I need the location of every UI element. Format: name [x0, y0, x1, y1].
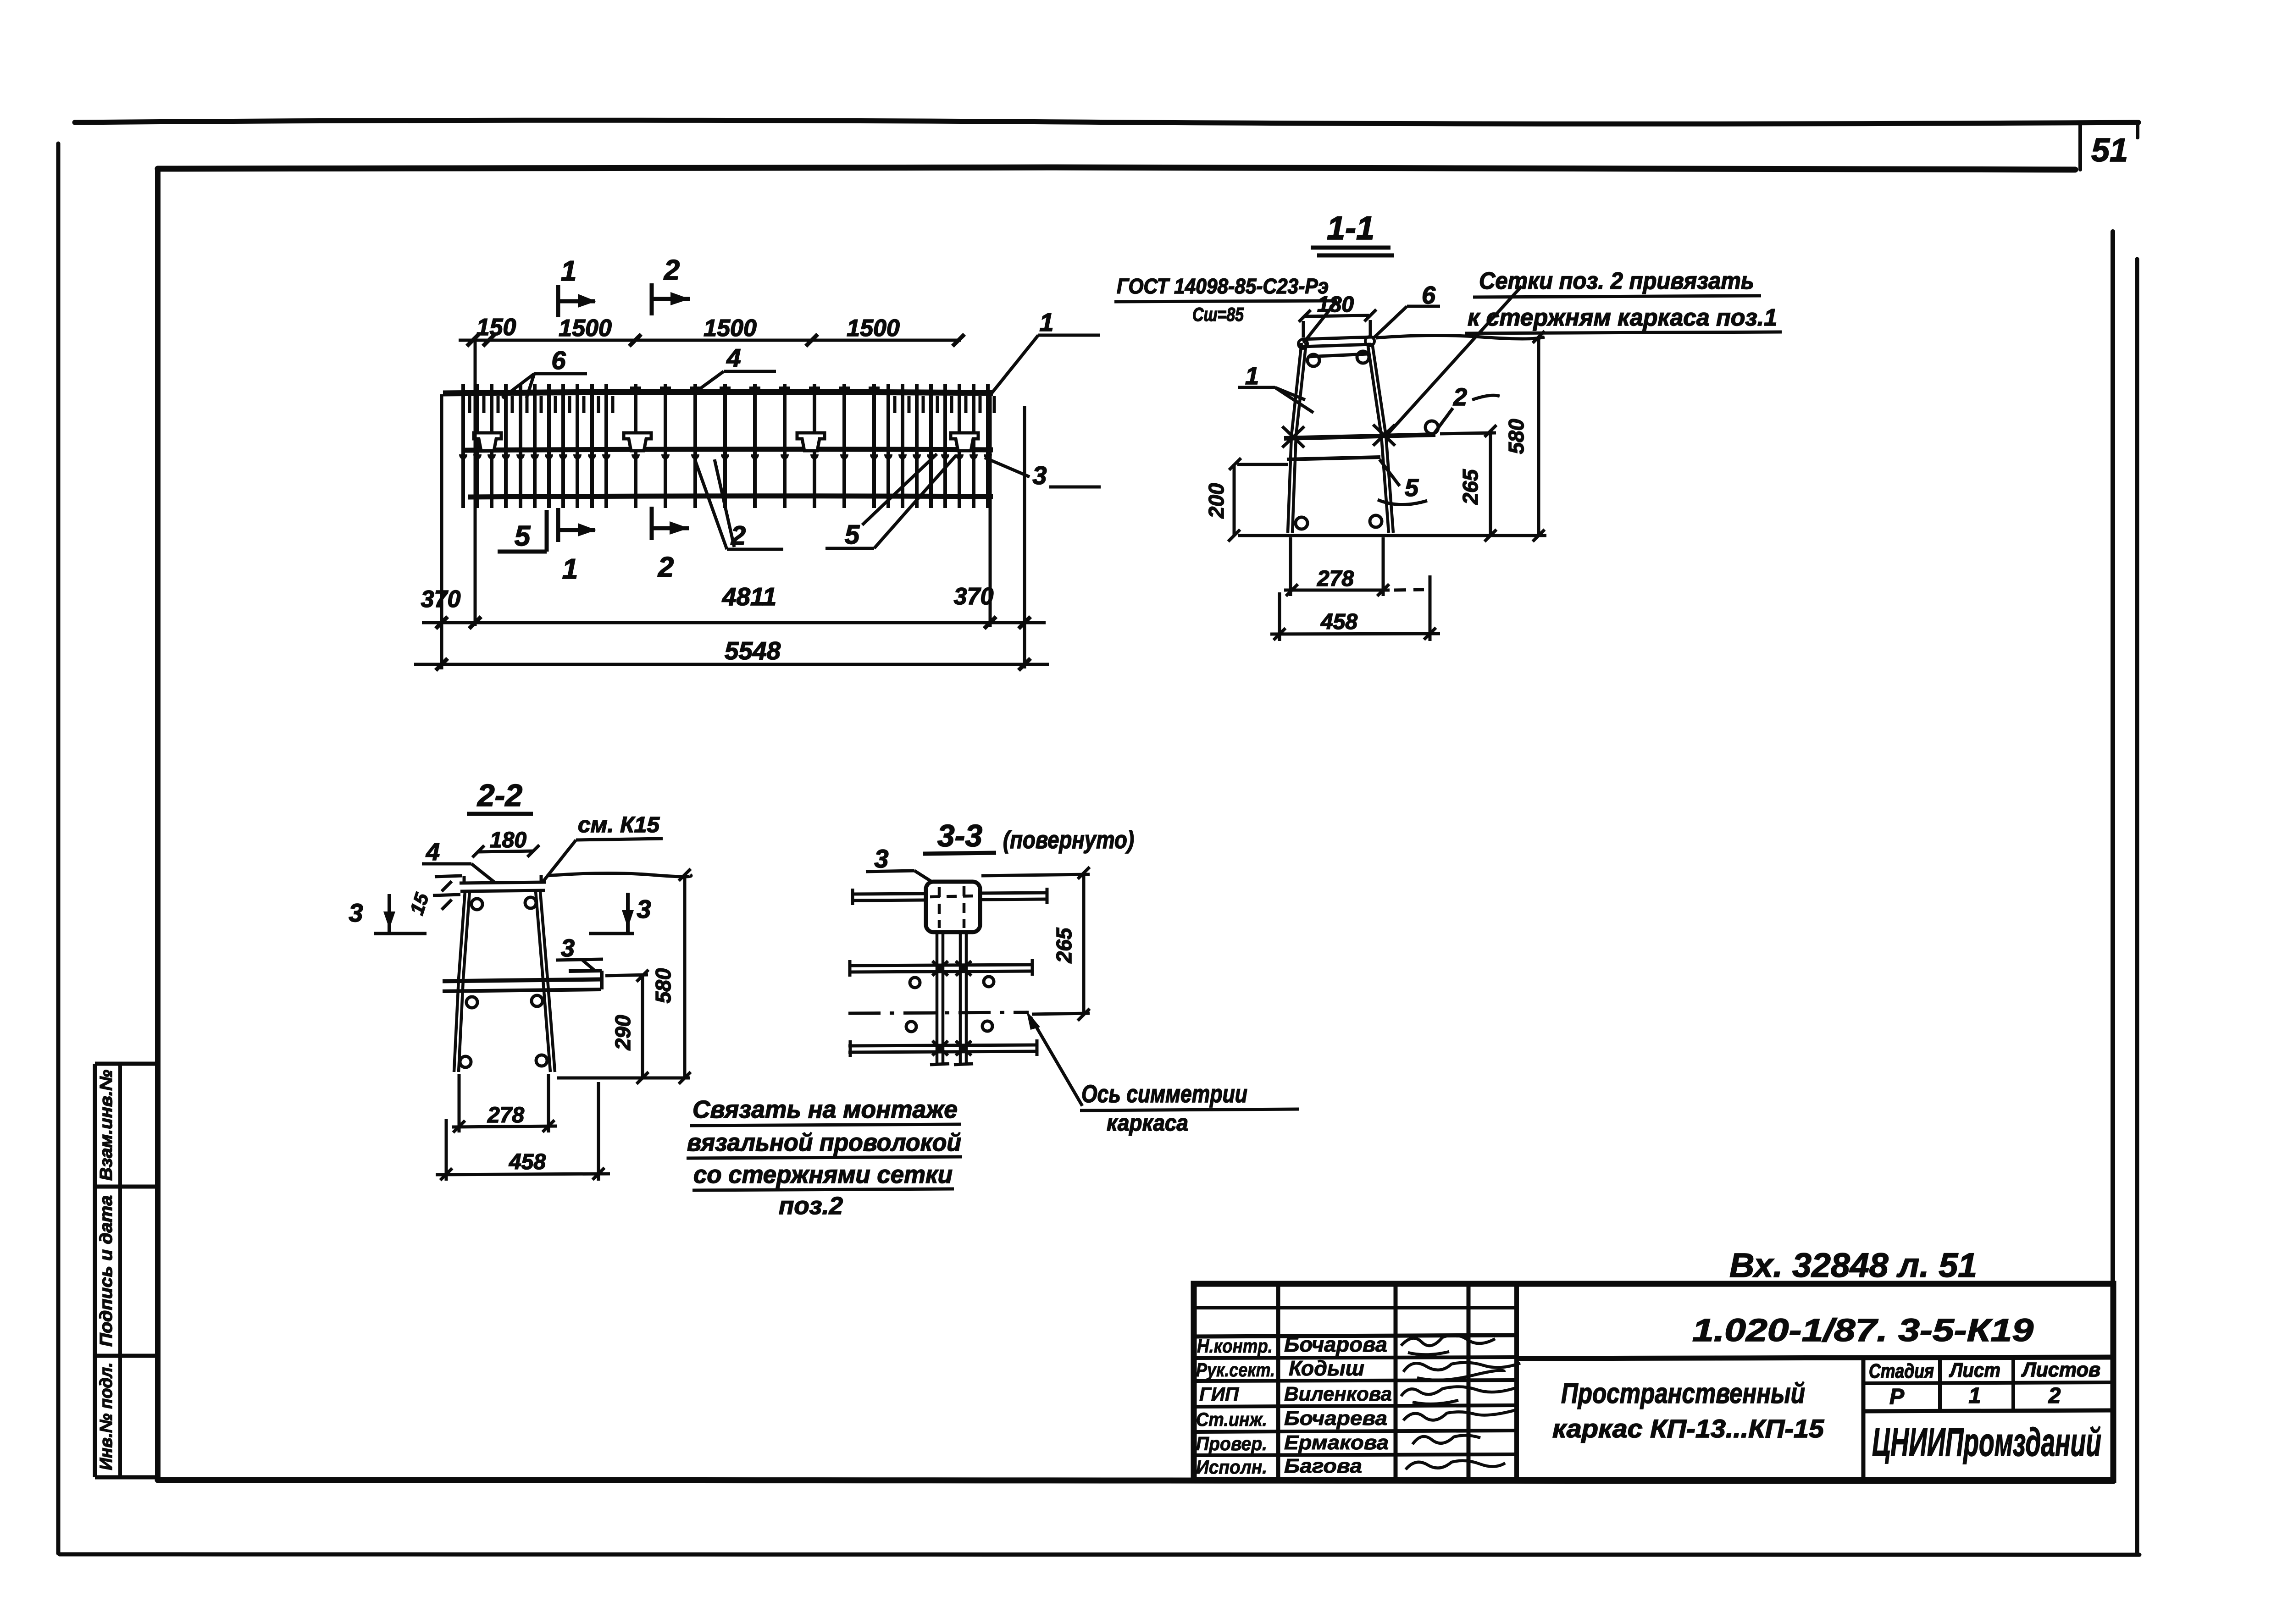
svg-text:Инв.№ подл.: Инв.№ подл. [97, 1363, 116, 1470]
svg-text:290: 290 [611, 1015, 635, 1050]
svg-text:Провер.: Провер. [1196, 1433, 1267, 1454]
svg-text:ГИП: ГИП [1199, 1383, 1239, 1405]
svg-text:Н.контр.: Н.контр. [1197, 1335, 1273, 1357]
svg-text:Сш=85: Сш=85 [1192, 304, 1244, 325]
svg-text:4: 4 [426, 838, 440, 866]
svg-text:2: 2 [731, 521, 746, 551]
svg-text:Связать на монтаже: Связать на монтаже [692, 1096, 958, 1123]
svg-text:ГОСТ 14098-85-С23-Рэ: ГОСТ 14098-85-С23-Рэ [1117, 274, 1329, 298]
svg-text:265: 265 [1052, 927, 1076, 963]
svg-text:Взам.инв.№: Взам.инв.№ [97, 1070, 116, 1181]
svg-text:Р: Р [1889, 1385, 1905, 1409]
svg-text:5548: 5548 [725, 636, 781, 665]
svg-text:каркаса: каркаса [1107, 1110, 1188, 1136]
svg-text:3: 3 [874, 844, 888, 873]
svg-text:Лист: Лист [1949, 1359, 2000, 1381]
svg-text:Стадия: Стадия [1869, 1360, 1934, 1382]
svg-text:1500: 1500 [847, 315, 900, 342]
svg-text:5: 5 [1405, 474, 1419, 502]
svg-text:265: 265 [1458, 469, 1482, 505]
svg-text:(повернуто): (повернуто) [1003, 826, 1134, 854]
svg-text:1: 1 [561, 255, 576, 287]
svg-text:458: 458 [509, 1150, 546, 1174]
svg-text:Бочарова: Бочарова [1284, 1332, 1387, 1356]
svg-text:Рук.сект.: Рук.сект. [1196, 1359, 1275, 1381]
svg-text:4811: 4811 [722, 582, 776, 611]
svg-text:3: 3 [561, 934, 575, 962]
svg-text:Ось симметрии: Ось симметрии [1081, 1080, 1247, 1108]
svg-text:см. К15: см. К15 [578, 813, 660, 837]
svg-text:1: 1 [562, 553, 578, 585]
svg-text:180: 180 [1317, 293, 1354, 317]
svg-text:2: 2 [658, 552, 674, 583]
svg-text:Виленкова: Виленкова [1284, 1383, 1392, 1405]
svg-text:370: 370 [954, 583, 994, 610]
svg-text:51: 51 [2091, 132, 2128, 169]
svg-text:5: 5 [845, 520, 860, 550]
svg-text:278: 278 [487, 1103, 524, 1127]
svg-text:580: 580 [651, 968, 675, 1003]
svg-text:6: 6 [551, 346, 566, 375]
svg-text:1: 1 [1245, 362, 1259, 390]
svg-text:Бочарева: Бочарева [1284, 1407, 1387, 1430]
svg-text:5: 5 [515, 520, 531, 552]
svg-text:1500: 1500 [559, 315, 612, 342]
svg-text:к стержням каркаса поз.1: к стержням каркаса поз.1 [1468, 304, 1777, 331]
svg-text:каркас КП-13...КП-15: каркас КП-13...КП-15 [1552, 1414, 1824, 1443]
svg-text:3: 3 [637, 895, 651, 923]
svg-text:Листов: Листов [2021, 1359, 2100, 1381]
svg-text:2-2: 2-2 [476, 778, 522, 813]
svg-text:Ст.инж.: Ст.инж. [1196, 1409, 1267, 1430]
svg-text:200: 200 [1204, 483, 1228, 519]
svg-text:со стержнями сетки: со стержнями сетки [693, 1161, 953, 1188]
svg-text:Вх. 32848 л. 51: Вх. 32848 л. 51 [1729, 1246, 1977, 1284]
svg-text:3-3: 3-3 [937, 818, 982, 853]
svg-text:2: 2 [1453, 383, 1467, 411]
svg-text:1.020-1/87. 3-5-К19: 1.020-1/87. 3-5-К19 [1692, 1312, 2033, 1348]
svg-text:ЦНИИПромзданий: ЦНИИПромзданий [1872, 1420, 2101, 1464]
svg-text:278: 278 [1317, 567, 1354, 591]
svg-text:1500: 1500 [704, 315, 757, 342]
svg-text:2: 2 [2048, 1384, 2061, 1408]
svg-text:Подпись и дата: Подпись и дата [97, 1195, 116, 1347]
svg-text:Исполн.: Исполн. [1196, 1456, 1267, 1478]
svg-text:Багова: Багова [1284, 1455, 1362, 1477]
svg-text:370: 370 [421, 586, 461, 613]
svg-text:3: 3 [1032, 461, 1047, 490]
svg-text:1: 1 [1039, 308, 1053, 337]
svg-text:Сетки поз. 2 привязать: Сетки поз. 2 привязать [1479, 268, 1754, 294]
svg-text:1: 1 [1969, 1384, 1981, 1408]
svg-text:Пространственный: Пространственный [1561, 1378, 1805, 1409]
svg-text:4: 4 [726, 343, 741, 372]
svg-text:2: 2 [664, 254, 680, 286]
svg-text:Ермакова: Ермакова [1284, 1431, 1389, 1454]
svg-text:3: 3 [349, 898, 363, 927]
svg-text:поз.2: поз.2 [779, 1192, 843, 1220]
svg-text:1-1: 1-1 [1327, 210, 1374, 247]
svg-text:Кодыш: Кодыш [1289, 1356, 1364, 1380]
svg-text:вязальной проволокой: вязальной проволокой [687, 1129, 961, 1156]
svg-text:458: 458 [1320, 610, 1357, 634]
svg-text:150: 150 [476, 314, 516, 341]
svg-text:580: 580 [1504, 419, 1528, 454]
svg-text:180: 180 [490, 828, 526, 852]
